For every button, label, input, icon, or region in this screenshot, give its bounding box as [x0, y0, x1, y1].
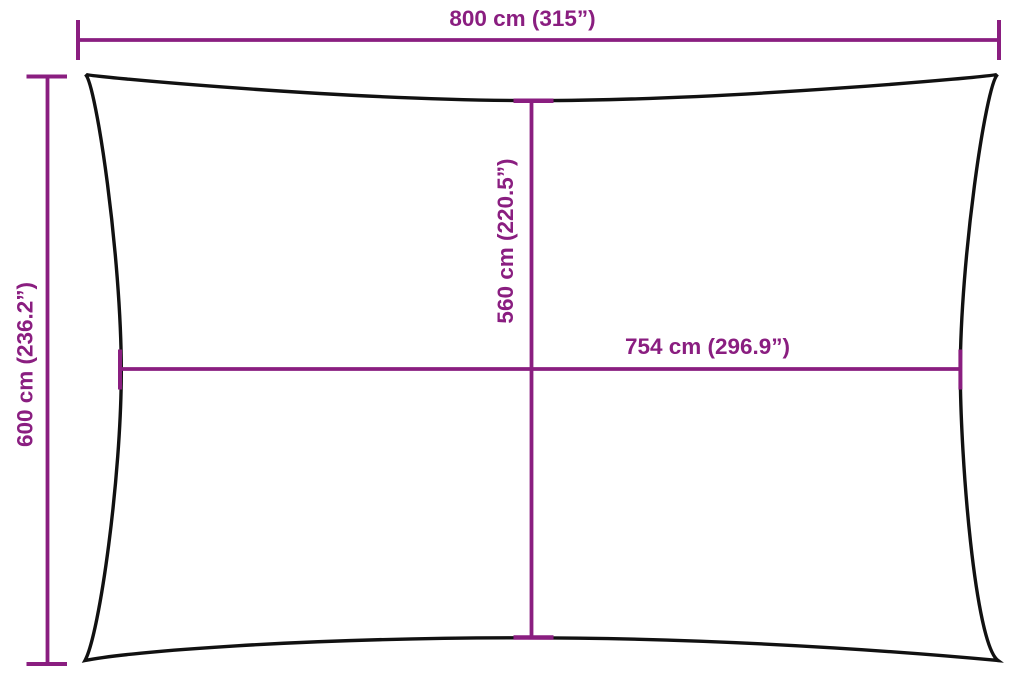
svg-text:600 cm (236.2”): 600 cm (236.2”)	[12, 282, 37, 447]
svg-text:800 cm (315”): 800 cm (315”)	[449, 6, 595, 31]
svg-text:560 cm (220.5”): 560 cm (220.5”)	[493, 158, 518, 323]
svg-text:754 cm (296.9”): 754 cm (296.9”)	[625, 334, 790, 359]
